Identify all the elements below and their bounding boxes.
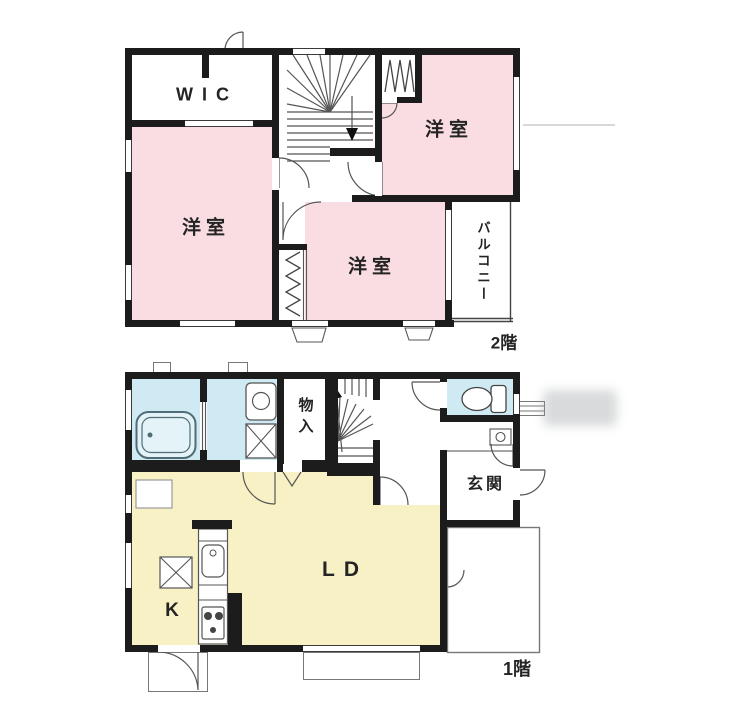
terrace-step bbox=[303, 652, 420, 680]
closet-bedroom-center bbox=[279, 250, 305, 320]
door-opening bbox=[158, 645, 200, 652]
wall bbox=[325, 372, 338, 470]
room-label-kitchen: K bbox=[165, 600, 179, 622]
backdoor-step bbox=[148, 652, 208, 692]
window-icon bbox=[513, 394, 520, 414]
wall bbox=[277, 460, 283, 472]
wall bbox=[440, 527, 447, 652]
room-label-wic: WIC bbox=[176, 85, 238, 106]
sliding-door-icon bbox=[185, 120, 253, 127]
hallway-1f bbox=[380, 379, 440, 505]
wall bbox=[272, 244, 307, 250]
door-opening bbox=[272, 158, 279, 190]
wall bbox=[192, 520, 232, 529]
door-opening bbox=[440, 382, 447, 408]
wall bbox=[200, 372, 207, 402]
wall bbox=[302, 460, 327, 472]
wall bbox=[352, 195, 513, 202]
floor-plan-canvas: WIC 洋室 洋室 洋室 バルコニー 2階 物入 玄関 LD K 1階 bbox=[0, 0, 733, 728]
wall bbox=[375, 97, 382, 103]
wall bbox=[513, 170, 520, 202]
room-label-living-dining: LD bbox=[322, 558, 368, 582]
window-icon bbox=[125, 390, 132, 430]
window-icon bbox=[180, 320, 235, 327]
wall bbox=[397, 97, 415, 103]
floor1-label: 1階 bbox=[503, 655, 531, 681]
wall bbox=[132, 460, 240, 472]
room-bathroom bbox=[132, 379, 200, 460]
wall bbox=[513, 48, 520, 77]
wall bbox=[440, 450, 447, 520]
room-toilet bbox=[447, 379, 513, 415]
wall bbox=[373, 372, 380, 400]
room-label-storage: 物入 bbox=[295, 397, 316, 439]
entrance-door-opening bbox=[513, 468, 520, 500]
closet-bedroom-right bbox=[382, 55, 415, 97]
wall bbox=[253, 120, 278, 127]
blurred-smudge bbox=[543, 390, 617, 426]
window-icon bbox=[403, 320, 435, 327]
window-icon bbox=[125, 495, 132, 513]
room-label-bedroom-left: 洋室 bbox=[182, 213, 230, 240]
wall bbox=[440, 520, 520, 527]
wall bbox=[272, 190, 279, 320]
room-washroom bbox=[207, 379, 277, 460]
wall bbox=[440, 372, 447, 382]
room-label-bedroom-center: 洋室 bbox=[348, 252, 396, 279]
wall bbox=[440, 415, 513, 422]
window-icon bbox=[293, 48, 325, 55]
hallway-2f bbox=[279, 158, 375, 248]
wall bbox=[327, 463, 380, 476]
exterior-step bbox=[518, 401, 545, 416]
wall bbox=[445, 300, 452, 320]
wall bbox=[445, 202, 452, 210]
wall bbox=[202, 55, 209, 78]
door-opening bbox=[382, 97, 397, 103]
wall bbox=[330, 148, 375, 156]
room-label-bedroom-right: 洋室 bbox=[425, 115, 473, 142]
staircase-1f bbox=[338, 379, 373, 463]
room-label-balcony: バルコニー bbox=[472, 221, 492, 304]
wall bbox=[272, 48, 279, 158]
door-opening bbox=[375, 162, 382, 196]
window-icon bbox=[513, 77, 520, 170]
folding-door-icon bbox=[203, 402, 206, 450]
room-ldk-east bbox=[373, 505, 440, 645]
window-icon bbox=[125, 543, 132, 588]
wall bbox=[125, 372, 520, 379]
wall bbox=[375, 48, 382, 162]
wall bbox=[228, 593, 242, 645]
window-icon bbox=[292, 320, 328, 327]
wall bbox=[132, 120, 185, 127]
staircase-2f bbox=[281, 55, 375, 158]
room-label-entrance: 玄関 bbox=[467, 470, 505, 494]
wall bbox=[415, 55, 422, 103]
wall bbox=[277, 372, 284, 464]
window-icon bbox=[125, 140, 132, 172]
window-icon bbox=[303, 645, 420, 652]
floor2-label: 2階 bbox=[491, 329, 517, 354]
window-icon bbox=[125, 265, 132, 300]
porch bbox=[447, 527, 540, 653]
casement-window-icon bbox=[292, 328, 433, 342]
window-icon bbox=[445, 210, 452, 300]
